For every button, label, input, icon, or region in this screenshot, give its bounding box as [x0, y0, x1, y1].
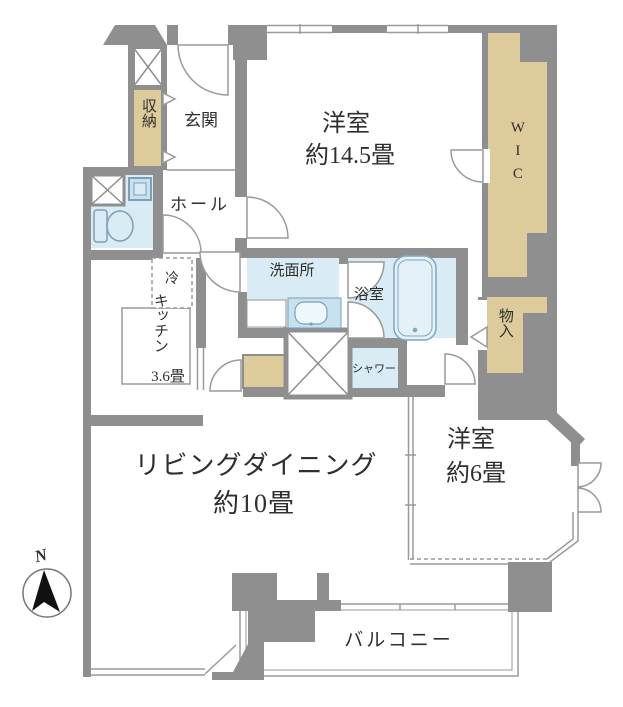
entry-closet-label: 収納: [139, 98, 155, 128]
floor-plan: 洋室 約14.5畳 リビングダイニング 約10畳 洋室 約6畳 玄関 ホール 収…: [0, 0, 623, 707]
wall-lintel-left: [167, 25, 178, 45]
wall-corner-block-south: [508, 562, 552, 612]
north-compass-icon: [23, 569, 71, 617]
hand-sink-icon: [129, 178, 151, 200]
bedroom1-label: 洋室: [322, 112, 370, 137]
kitchen-label: キッチン: [151, 293, 167, 353]
wall-hall-west: [153, 167, 163, 253]
wall-kitchen-top: [83, 250, 163, 260]
pillar: [212, 573, 341, 680]
floor-plan-drawing: [0, 0, 623, 707]
hall-door-swing: [163, 215, 201, 253]
window-1: [267, 24, 332, 34]
shower-label: シャワー: [352, 364, 396, 376]
window-2: [387, 24, 448, 34]
entrance-label: 玄関: [184, 112, 218, 130]
closet-door-marker-icon: [163, 93, 175, 105]
bathroom-label: 浴室: [354, 288, 384, 304]
wall-washroom-west: [238, 292, 247, 328]
closet-door-marker-icon: [163, 151, 175, 163]
wall-top: [332, 25, 387, 33]
duct-shaft-icon: [133, 47, 163, 87]
bay-window-line: [550, 512, 578, 562]
wall-shower-east: [398, 348, 407, 397]
wall-kitchen-bottom: [83, 415, 203, 426]
vanity-sink-icon: [247, 298, 341, 328]
living-label: リビングダイニング: [134, 452, 377, 479]
bedroom2-size: 約6畳: [446, 462, 506, 487]
wic-door-swing: [451, 150, 483, 182]
wall-washroom-top: [235, 248, 468, 258]
wall-bedroom2-top: [407, 385, 445, 397]
bedroom2-label: 洋室: [447, 428, 495, 453]
side-storage-label: 物入: [496, 308, 512, 338]
wall-washroom-bottom: [238, 328, 290, 338]
wall-bath-east: [456, 248, 468, 345]
kitchen-door-swing: [210, 360, 241, 391]
balcony-label: バルコニー: [344, 631, 454, 651]
bathtub-icon: [394, 256, 436, 340]
bedroom1-door-swing: [247, 197, 288, 238]
living-size: 約10畳: [213, 490, 295, 517]
bay-window-line: [547, 512, 573, 559]
duct-cap: [103, 25, 167, 45]
bay-door-swing-lower: [578, 488, 601, 512]
wall-hall-east: [235, 25, 247, 197]
wic-label: WIC: [509, 120, 525, 189]
toilet-icon: [94, 210, 133, 242]
bedroom2-door-swing: [445, 354, 475, 384]
bedroom1-size: 約14.5畳: [305, 144, 395, 169]
elevator-shaft-icon: [286, 330, 350, 397]
pipe-shaft-icon: [91, 175, 124, 205]
wall-bath-divider: [339, 252, 348, 264]
bay-door-swing-upper: [578, 463, 601, 487]
washroom-label: 洗面所: [269, 264, 314, 280]
hall-label: ホール: [170, 196, 230, 214]
living-window-diagonal: [205, 645, 236, 674]
refrigerator-label: 冷: [165, 273, 179, 288]
wall-top: [247, 25, 267, 33]
kitchen-size: 3.6畳: [151, 370, 185, 386]
entrance-door-swing: [178, 45, 228, 95]
core-closet-fill: [243, 355, 286, 388]
